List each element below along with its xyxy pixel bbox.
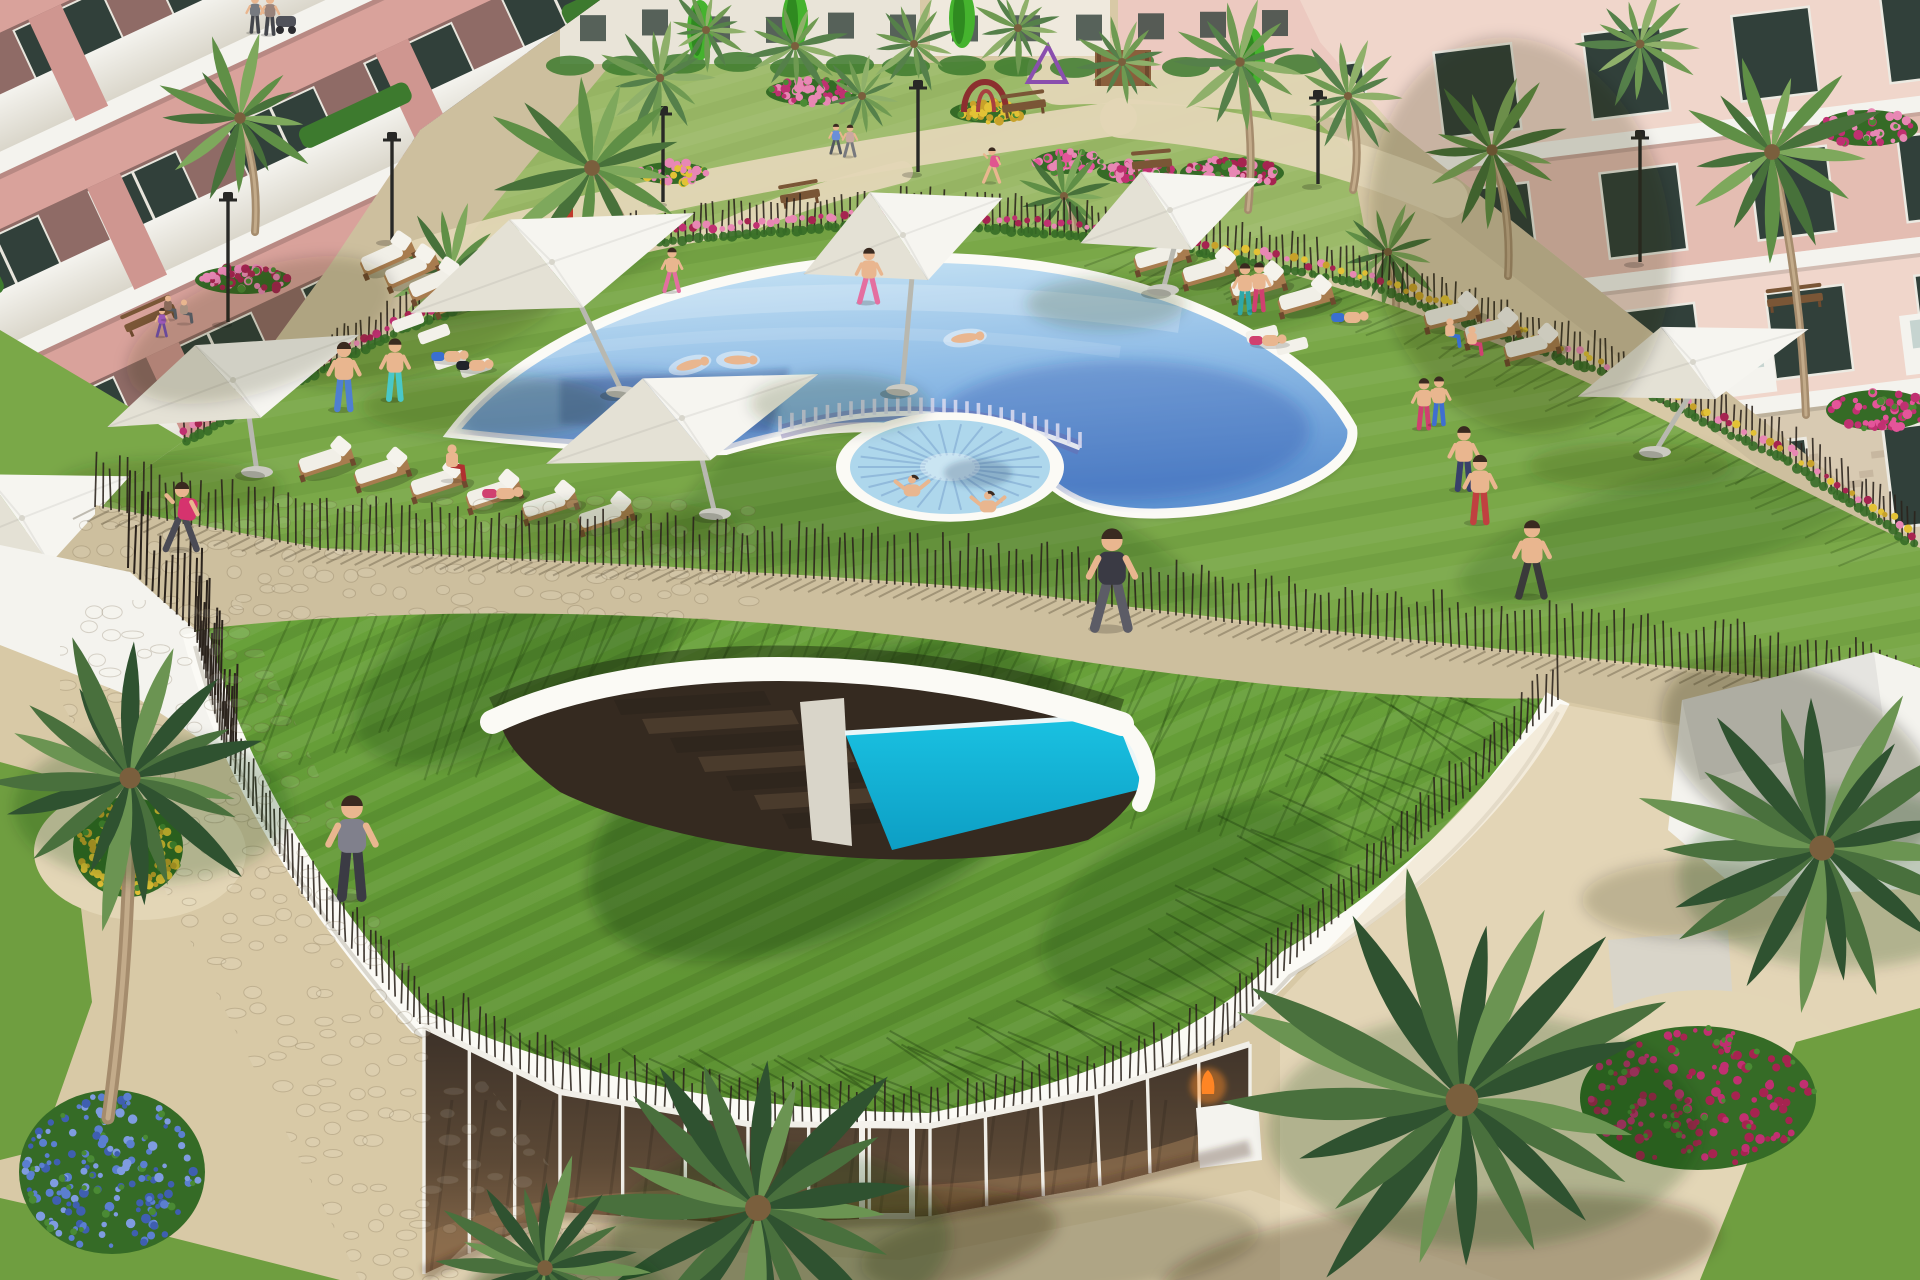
- swimmer: [716, 351, 760, 369]
- rendering-stage: Aerial 3D rendering of a resort pool com…: [0, 0, 1920, 1280]
- person: [1249, 334, 1290, 349]
- resort-aerial-rendering: [0, 0, 1920, 1280]
- person: [1331, 311, 1372, 326]
- person: [456, 359, 497, 374]
- person: [482, 487, 527, 502]
